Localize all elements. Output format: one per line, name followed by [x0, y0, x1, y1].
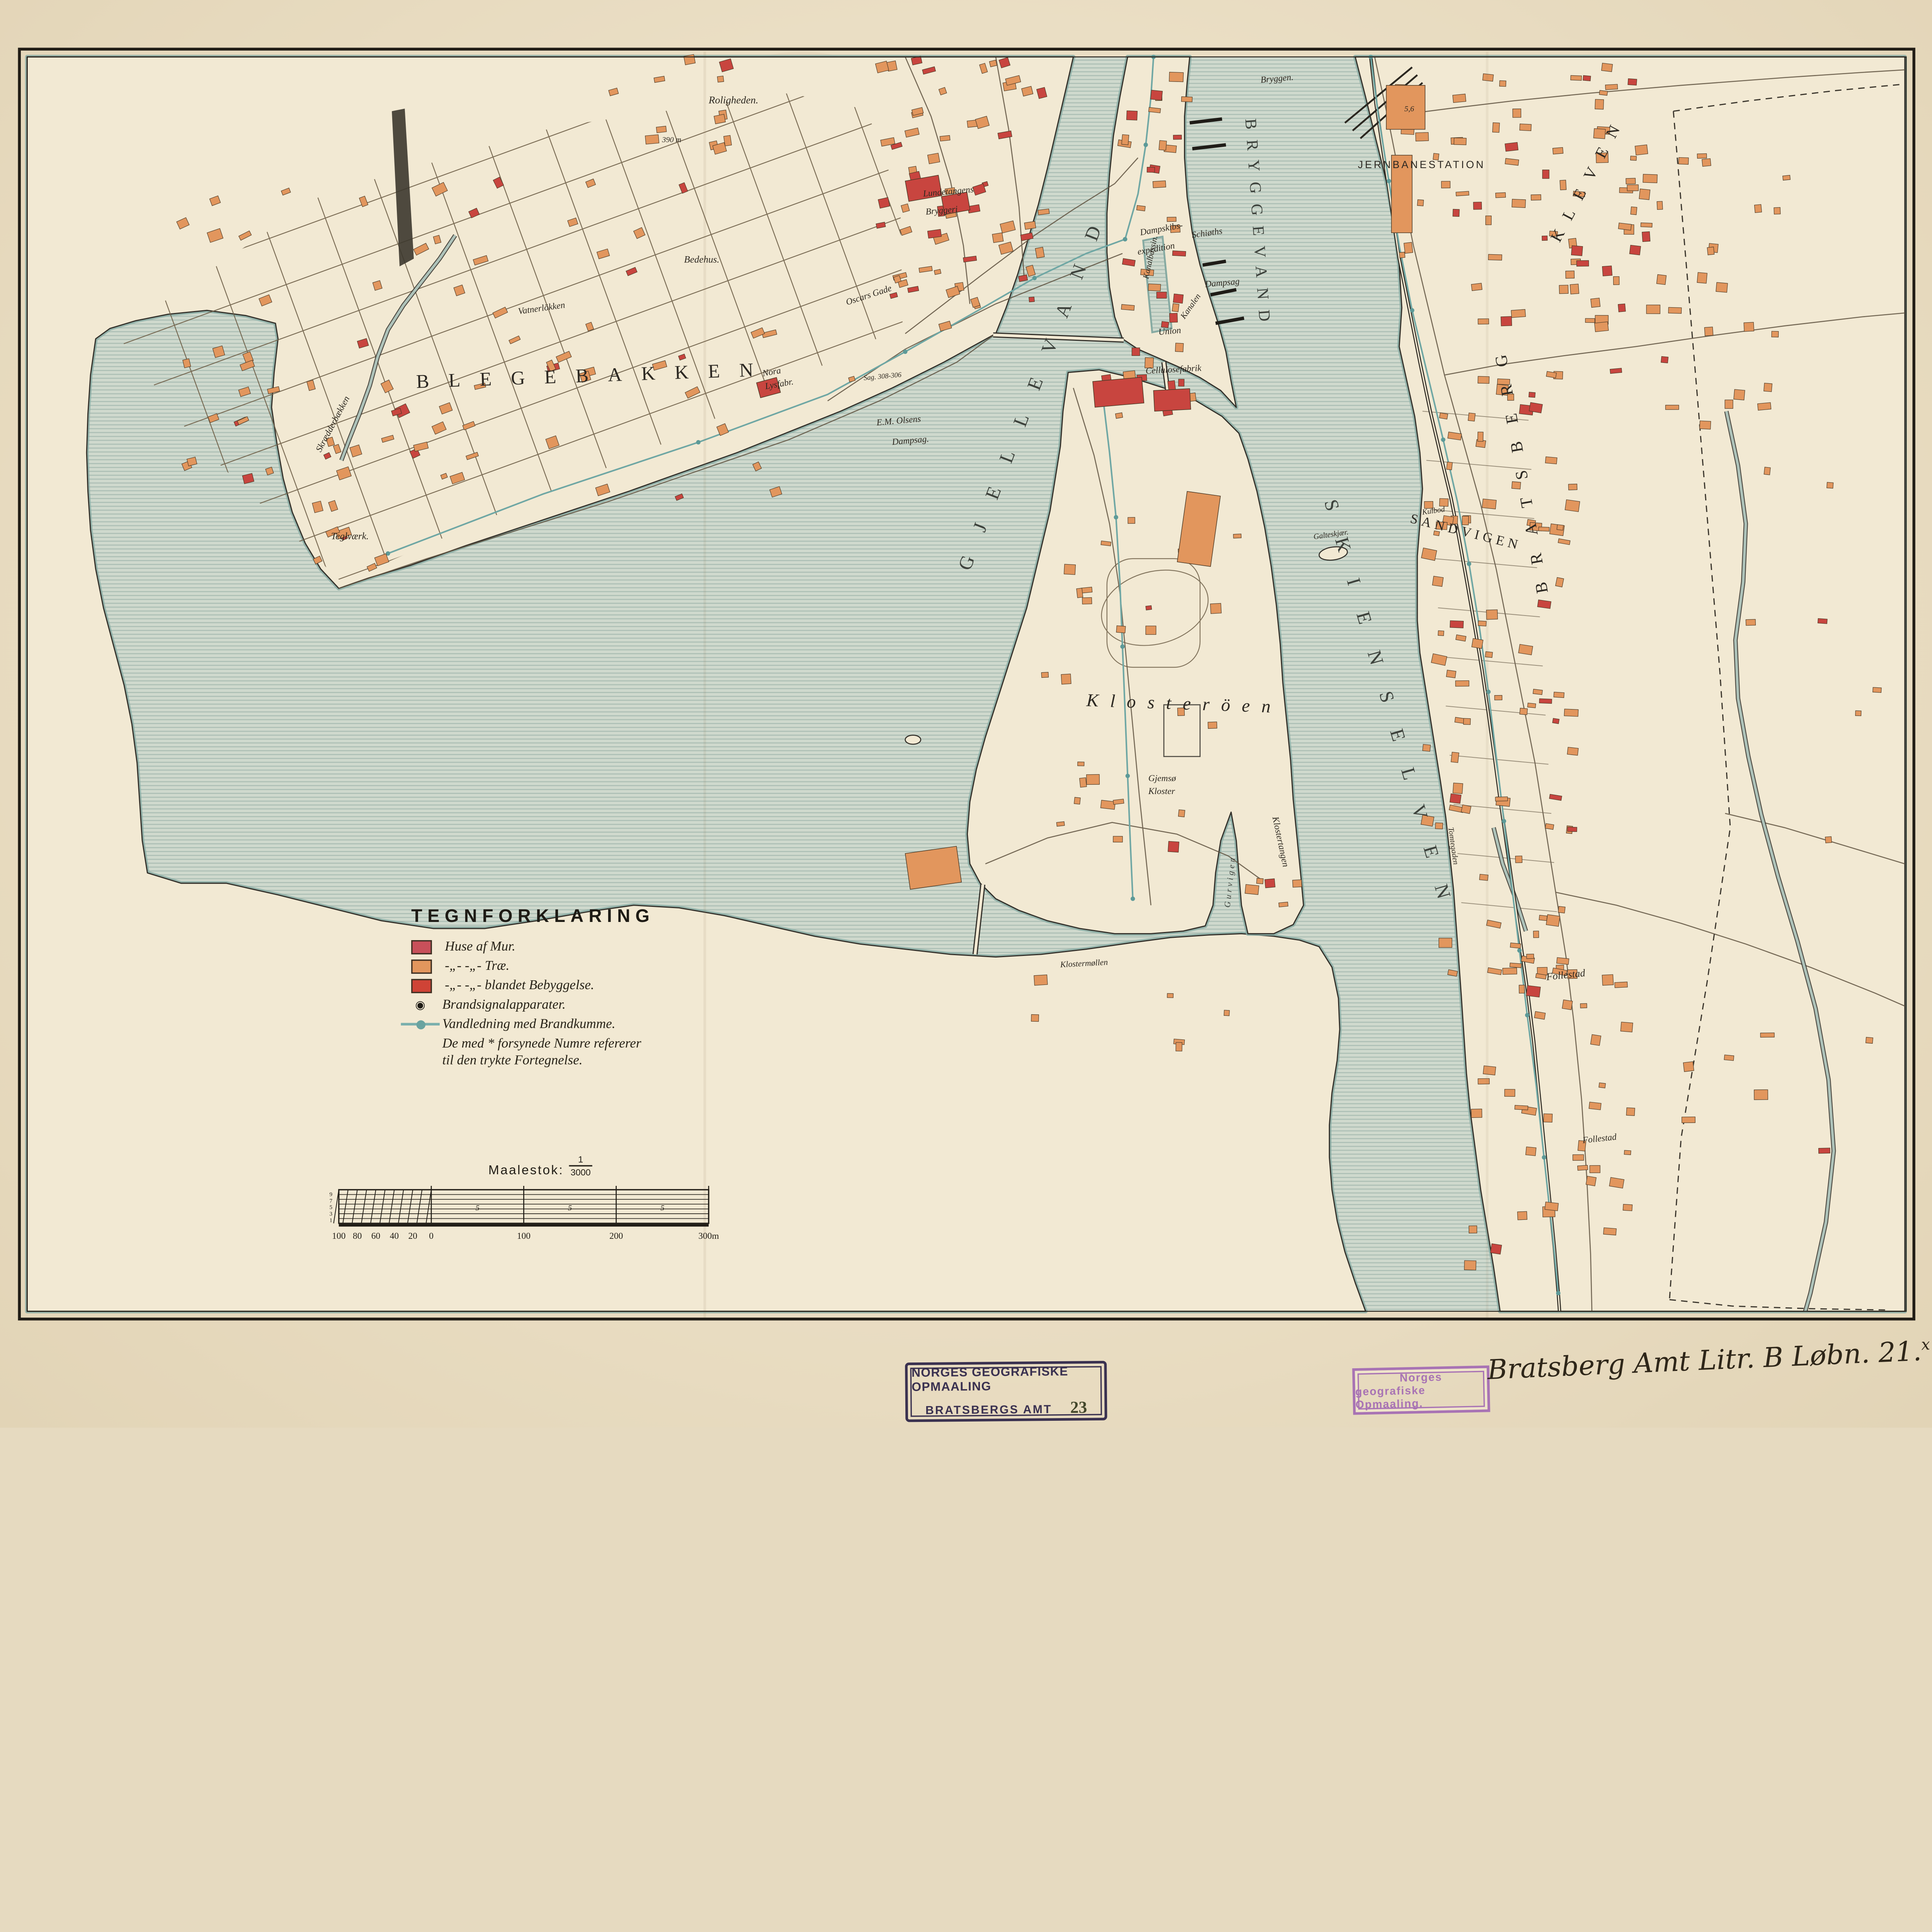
svg-text:5: 5: [476, 1204, 480, 1213]
building-trae: [1602, 63, 1613, 71]
building-trae: [1505, 1089, 1515, 1097]
building-mur: [928, 229, 942, 238]
building-trae: [1517, 1211, 1527, 1220]
building-trae: [1565, 500, 1580, 512]
building-trae: [1744, 322, 1754, 332]
scale-tick: 300m: [698, 1231, 719, 1241]
building-trae: [1783, 175, 1791, 180]
scale-tick: 0: [429, 1231, 434, 1241]
building-mur: [1473, 202, 1482, 209]
map-interior: GJELLEVANDBRYGGEVANDSKIENSELVENGurvigenB…: [11, 0, 1906, 1311]
building-mur: [878, 197, 890, 208]
building-trae: [1553, 147, 1563, 154]
building-trae: [1746, 619, 1755, 626]
place-label-bedehus-: Bedehus.: [684, 254, 719, 265]
building-trae: [1454, 138, 1466, 145]
building-trae: [1621, 1022, 1633, 1032]
map-canvas: GJELLEVANDBRYGGEVANDSKIENSELVENGurvigenB…: [0, 0, 1932, 1428]
building-trae: [1697, 272, 1707, 283]
building-trae: [1764, 467, 1770, 475]
building-trae: [1415, 133, 1429, 141]
building-mur: [1156, 292, 1167, 298]
purple-stamp-line2: geografiske Opmaaling.: [1355, 1382, 1488, 1411]
building-trae: [1074, 797, 1080, 804]
legend-note-line1: De med * forsynede Numre refererer: [442, 1036, 838, 1053]
building-mur: [1147, 167, 1155, 173]
building-trae: [1511, 310, 1526, 318]
building-trae: [1128, 517, 1135, 524]
building-trae: [1774, 207, 1781, 214]
building-trae: [1503, 968, 1517, 975]
building-trae: [1024, 221, 1036, 230]
building-trae: [1519, 985, 1524, 993]
building-trae: [1399, 252, 1405, 258]
place-label-teglv-rk-: Teglværk.: [331, 531, 369, 542]
building-trae: [1560, 180, 1566, 190]
building-trae: [1545, 1202, 1558, 1211]
building-trae: [1438, 631, 1444, 636]
building-trae: [1567, 747, 1578, 755]
building-trae: [1595, 99, 1604, 109]
building-trae: [1613, 277, 1619, 285]
building-trae: [1580, 1003, 1587, 1008]
mur-swatch-icon: [411, 939, 432, 954]
building-trae: [1176, 1043, 1182, 1051]
building-trae: [1546, 915, 1560, 927]
building-trae: [1520, 124, 1531, 131]
scale-tick: 100: [332, 1231, 345, 1241]
scale-tick: 40: [390, 1231, 399, 1241]
building-trae: [1439, 938, 1452, 947]
building-mur: [1618, 304, 1626, 312]
building-trae: [1500, 81, 1506, 87]
building-trae: [1148, 284, 1161, 291]
building-mur: [1151, 90, 1163, 100]
pipe-icon: [401, 1023, 439, 1026]
building-trae: [1697, 153, 1707, 158]
building-mur: [1818, 619, 1827, 624]
building-trae: [1510, 963, 1521, 968]
building-trae: [1627, 185, 1638, 191]
building-trae: [1078, 762, 1084, 766]
building-mur: [1265, 879, 1275, 888]
building-trae: [1599, 90, 1607, 95]
svg-text:1: 1: [578, 1155, 583, 1165]
blandet-swatch-icon: [411, 978, 432, 993]
building-trae: [1707, 247, 1714, 255]
building-trae: [1224, 1010, 1230, 1016]
svg-text:9: 9: [330, 1192, 333, 1198]
building-trae: [1208, 722, 1217, 728]
building-trae: [1578, 1165, 1588, 1170]
building-trae: [1172, 304, 1179, 312]
building-trae: [1077, 588, 1083, 598]
place-label-kloster: Kloster: [1148, 786, 1175, 796]
building-trae: [1533, 689, 1543, 694]
purple-stamp: Norges geografiske Opmaaling.: [1352, 1366, 1490, 1415]
building-trae: [1035, 247, 1044, 258]
building-trae: [1505, 158, 1519, 165]
building-trae: [1591, 298, 1600, 307]
svg-text:1: 1: [330, 1218, 333, 1224]
building-trae: [1453, 94, 1466, 102]
building-mur: [1450, 794, 1461, 804]
place-label-gjems-: Gjemsø: [1148, 773, 1176, 783]
building-trae: [1700, 421, 1711, 429]
building-trae: [1557, 524, 1563, 530]
building-trae: [1764, 383, 1772, 391]
building-trae: [1495, 797, 1508, 801]
building-trae: [1566, 271, 1575, 278]
building-trae: [1116, 626, 1126, 633]
svg-text:5: 5: [330, 1204, 333, 1211]
trae-swatch-icon: [411, 959, 432, 973]
building-trae: [1471, 283, 1482, 291]
building-mur: [1132, 348, 1139, 355]
building-trae: [1772, 331, 1779, 337]
district-label-jernbanestation: JERNBANESTATION: [1358, 159, 1485, 170]
place-label-union: Union: [1158, 325, 1182, 337]
building-trae: [1482, 499, 1497, 509]
building-trae: [1087, 774, 1100, 784]
building-mur: [1526, 985, 1541, 997]
building-mur: [1537, 600, 1551, 609]
building-trae: [1531, 195, 1541, 201]
building-trae: [684, 54, 696, 65]
building-trae: [1562, 1000, 1573, 1010]
building-trae: [1031, 1014, 1039, 1021]
building-trae: [1635, 145, 1648, 155]
building-mur: [1146, 605, 1152, 610]
building-trae: [1568, 484, 1577, 490]
building-trae: [1113, 799, 1124, 804]
building-trae: [1526, 1147, 1536, 1156]
building-trae: [1665, 405, 1679, 410]
building-trae: [1599, 1083, 1605, 1088]
building-mur: [1450, 621, 1464, 628]
building-trae: [1754, 1090, 1768, 1100]
building-trae: [1169, 72, 1184, 82]
building-trae: [940, 135, 950, 141]
building-trae: [1456, 191, 1469, 196]
building-trae: [1544, 1114, 1553, 1122]
building-trae: [1488, 254, 1502, 260]
svg-text:5: 5: [660, 1204, 664, 1213]
building-trae: [1855, 711, 1861, 716]
building-trae: [1034, 975, 1048, 985]
building-trae: [1573, 1155, 1583, 1160]
building-trae: [1423, 744, 1431, 751]
building-trae: [1122, 134, 1129, 145]
building-trae: [1435, 823, 1443, 829]
building-mur: [1505, 142, 1518, 151]
building-trae: [1545, 823, 1554, 830]
legend-note-line2: til den trykte Fortegnelse.: [442, 1053, 838, 1070]
building-mur: [1602, 266, 1612, 276]
building-mur: [1529, 392, 1535, 398]
building-trae: [1463, 718, 1470, 724]
building-mur: [1501, 316, 1512, 326]
building-trae: [1455, 717, 1464, 723]
building-trae: [1564, 709, 1578, 716]
building-trae: [1527, 954, 1534, 959]
building-trae: [1056, 821, 1065, 826]
building-mur: [1126, 111, 1137, 121]
stamp-sheet-number: 23: [1070, 1396, 1087, 1417]
building-mur: [1529, 402, 1543, 413]
building-trae: [1554, 692, 1564, 698]
building-mur: [1629, 245, 1641, 255]
building-mur: [1490, 1244, 1502, 1254]
building-trae: [1555, 577, 1564, 587]
building-trae: [1483, 1066, 1496, 1075]
building-trae: [1210, 603, 1221, 614]
building-trae: [1113, 836, 1122, 842]
building-trae: [1631, 207, 1637, 215]
building-trae: [1630, 156, 1636, 161]
building-trae: [1534, 1012, 1546, 1020]
building-trae: [1682, 1117, 1695, 1122]
building-trae: [1716, 282, 1728, 293]
building-trae: [1478, 621, 1486, 626]
building-trae: [1668, 307, 1682, 313]
building-trae: [1570, 284, 1579, 294]
legend-item-mur: Huse af Mur.: [411, 939, 838, 954]
building-trae: [1441, 181, 1450, 188]
map-sheet: GJELLEVANDBRYGGEVANDSKIENSELVENGurvigenB…: [0, 0, 1932, 1428]
building-mur: [1583, 75, 1591, 81]
building-trae: [1827, 482, 1833, 488]
legend-item-brandsignal: ◉ Brandsignalapparater.: [411, 997, 838, 1012]
building-mur: [1542, 236, 1548, 240]
building-mur: [1173, 135, 1182, 139]
building-trae: [1116, 413, 1123, 418]
building-trae: [1153, 181, 1166, 188]
building-trae: [1556, 957, 1569, 964]
building-trae: [1605, 84, 1618, 90]
building-mur: [1179, 379, 1184, 386]
building-trae: [1461, 805, 1471, 814]
svg-text:3000: 3000: [571, 1167, 591, 1177]
building-trae: [1439, 413, 1448, 419]
building-trae: [1590, 1165, 1600, 1173]
stamp-amt-text: BRATSBERGS AMT: [925, 1402, 1052, 1416]
building-mur: [1168, 841, 1179, 852]
place-label-390-m: 390 m: [662, 136, 682, 144]
building-trae: [1734, 389, 1745, 400]
building-trae: [1683, 1061, 1694, 1071]
building-trae: [1725, 400, 1733, 408]
building-trae: [1590, 1034, 1601, 1046]
svg-text:5: 5: [568, 1204, 572, 1213]
building-large-wood: [905, 846, 962, 889]
building-trae: [1702, 158, 1711, 166]
building-trae: [1595, 322, 1609, 332]
scale-tick: 200: [609, 1231, 623, 1241]
building-trae: [989, 60, 997, 67]
scale-tick: 100: [517, 1231, 531, 1241]
building-trae: [1453, 783, 1463, 794]
building-mur: [1661, 356, 1668, 363]
building-mur: [1818, 1148, 1830, 1153]
building-trae: [1495, 192, 1505, 197]
building-trae: [1602, 975, 1613, 985]
islet: [905, 735, 921, 744]
building-mur: [1173, 294, 1183, 303]
building-trae: [1558, 906, 1565, 913]
building-trae: [1623, 1204, 1632, 1211]
building-trae: [1513, 109, 1521, 117]
building-mur: [1628, 79, 1637, 85]
building-trae: [928, 153, 940, 164]
building-large-mur: [1153, 389, 1190, 411]
svg-text:7: 7: [330, 1198, 333, 1204]
building-trae: [1404, 242, 1413, 253]
building-trae: [1559, 285, 1568, 294]
building-trae: [1121, 304, 1134, 310]
building-mur: [1539, 699, 1552, 704]
place-label-roligheden-: Roligheden.: [708, 94, 759, 106]
building-trae: [1624, 1150, 1631, 1155]
building-trae: [1432, 576, 1443, 587]
building-trae: [1679, 157, 1689, 164]
building-trae: [1866, 1037, 1873, 1043]
building-trae: [1515, 1105, 1528, 1110]
survey-stamp: NORGES GEOGRAFISKE OPMAALING BRATSBERGS …: [905, 1361, 1107, 1422]
building-trae: [1478, 432, 1483, 441]
building-trae: [1527, 703, 1536, 708]
building-trae: [1495, 695, 1502, 700]
building-trae: [1609, 1177, 1624, 1188]
building-trae: [1589, 1102, 1601, 1110]
building-mur: [1169, 313, 1177, 323]
building-trae: [1279, 902, 1288, 907]
building-trae: [1146, 626, 1156, 634]
building-trae: [1245, 884, 1259, 895]
building-trae: [1293, 880, 1302, 888]
building-trae: [1464, 1260, 1476, 1270]
building-trae: [1082, 597, 1092, 604]
building-trae: [1515, 856, 1522, 863]
building-trae: [1639, 189, 1650, 200]
building-trae: [1520, 708, 1527, 714]
building-trae: [1471, 1109, 1482, 1117]
building-mur: [1172, 251, 1186, 256]
building-trae: [1175, 343, 1184, 352]
building-trae: [1451, 752, 1459, 762]
map-legend: TEGNFORKLARING Huse af Mur. -„- -„- Træ.…: [411, 905, 838, 1070]
building-trae: [1724, 1055, 1734, 1061]
building-trae: [1825, 837, 1832, 843]
purple-stamp-line1: Norges: [1400, 1370, 1442, 1384]
building-trae: [1615, 982, 1628, 988]
building-trae: [1643, 174, 1657, 183]
building-mur: [1577, 260, 1588, 266]
building-trae: [1758, 403, 1771, 410]
building-trae: [1468, 413, 1475, 421]
building-trae: [1136, 206, 1145, 211]
building-large-mur: [1093, 377, 1144, 407]
building-trae: [1512, 199, 1526, 207]
building-trae: [1061, 674, 1071, 684]
building-trae: [1754, 204, 1762, 213]
building-trae: [1641, 223, 1652, 227]
building-mur: [1568, 827, 1577, 832]
building-trae: [1064, 564, 1076, 575]
building-mur: [1553, 718, 1559, 724]
legend-item-vandledning: Vandledning med Brandkumme.: [411, 1017, 838, 1032]
building-trae: [1456, 680, 1469, 686]
building-trae: [1626, 1108, 1635, 1116]
building-trae: [1604, 1228, 1617, 1235]
building-mur: [1543, 170, 1549, 179]
place-label-5-6: 5,6: [1405, 105, 1414, 113]
building-trae: [1469, 1226, 1477, 1233]
scale-tick: 20: [408, 1231, 417, 1241]
building-trae: [645, 134, 659, 144]
building-trae: [656, 126, 667, 133]
building-trae: [1510, 943, 1520, 948]
scale-caption: Maalestok:: [488, 1163, 564, 1177]
building-trae: [1178, 810, 1185, 817]
building-trae: [1446, 462, 1452, 470]
building-trae: [1519, 644, 1533, 655]
building-trae: [1585, 318, 1595, 323]
building-trae: [1472, 638, 1483, 648]
building-trae: [1167, 993, 1173, 998]
scale-tick: 60: [371, 1231, 380, 1241]
building-mur: [1571, 246, 1583, 256]
building-trae: [1167, 217, 1176, 222]
building-trae: [1159, 141, 1167, 150]
building-trae: [1618, 223, 1631, 230]
building-trae: [1626, 178, 1636, 184]
building-trae: [1446, 670, 1456, 678]
building-trae: [1657, 201, 1663, 210]
building-trae: [1233, 534, 1242, 538]
building-trae: [992, 233, 1003, 243]
building-trae: [1181, 97, 1192, 102]
legend-title: TEGNFORKLARING: [411, 905, 838, 926]
brandsignal-icon: ◉: [411, 999, 429, 1010]
building-mur: [1642, 231, 1650, 241]
building-mur: [1029, 297, 1034, 302]
building-mur: [1610, 368, 1622, 374]
building-trae: [1080, 777, 1087, 787]
building-mur: [1453, 209, 1459, 216]
building-trae: [1571, 75, 1582, 80]
building-trae: [1873, 687, 1881, 692]
building-trae: [1656, 274, 1666, 284]
building-trae: [1257, 878, 1264, 884]
building-trae: [1041, 672, 1048, 678]
svg-text:3: 3: [330, 1211, 333, 1217]
legend-item-trae: -„- -„- Træ.: [411, 958, 838, 974]
building-trae: [1493, 122, 1500, 132]
building-trae: [1539, 915, 1547, 920]
building-trae: [714, 114, 726, 124]
stamp-agency-text: NORGES GEOGRAFISKE OPMAALING: [912, 1364, 1100, 1394]
building-trae: [1704, 327, 1713, 336]
legend-item-blandet: -„- -„- blandet Bebyggelse.: [411, 978, 838, 993]
building-trae: [1586, 1176, 1596, 1186]
scale-tick: 80: [353, 1231, 362, 1241]
building-trae: [1646, 305, 1660, 314]
building-trae: [1545, 457, 1557, 464]
building-trae: [717, 76, 724, 82]
building-trae: [1081, 587, 1092, 593]
building-trae: [1417, 200, 1423, 206]
